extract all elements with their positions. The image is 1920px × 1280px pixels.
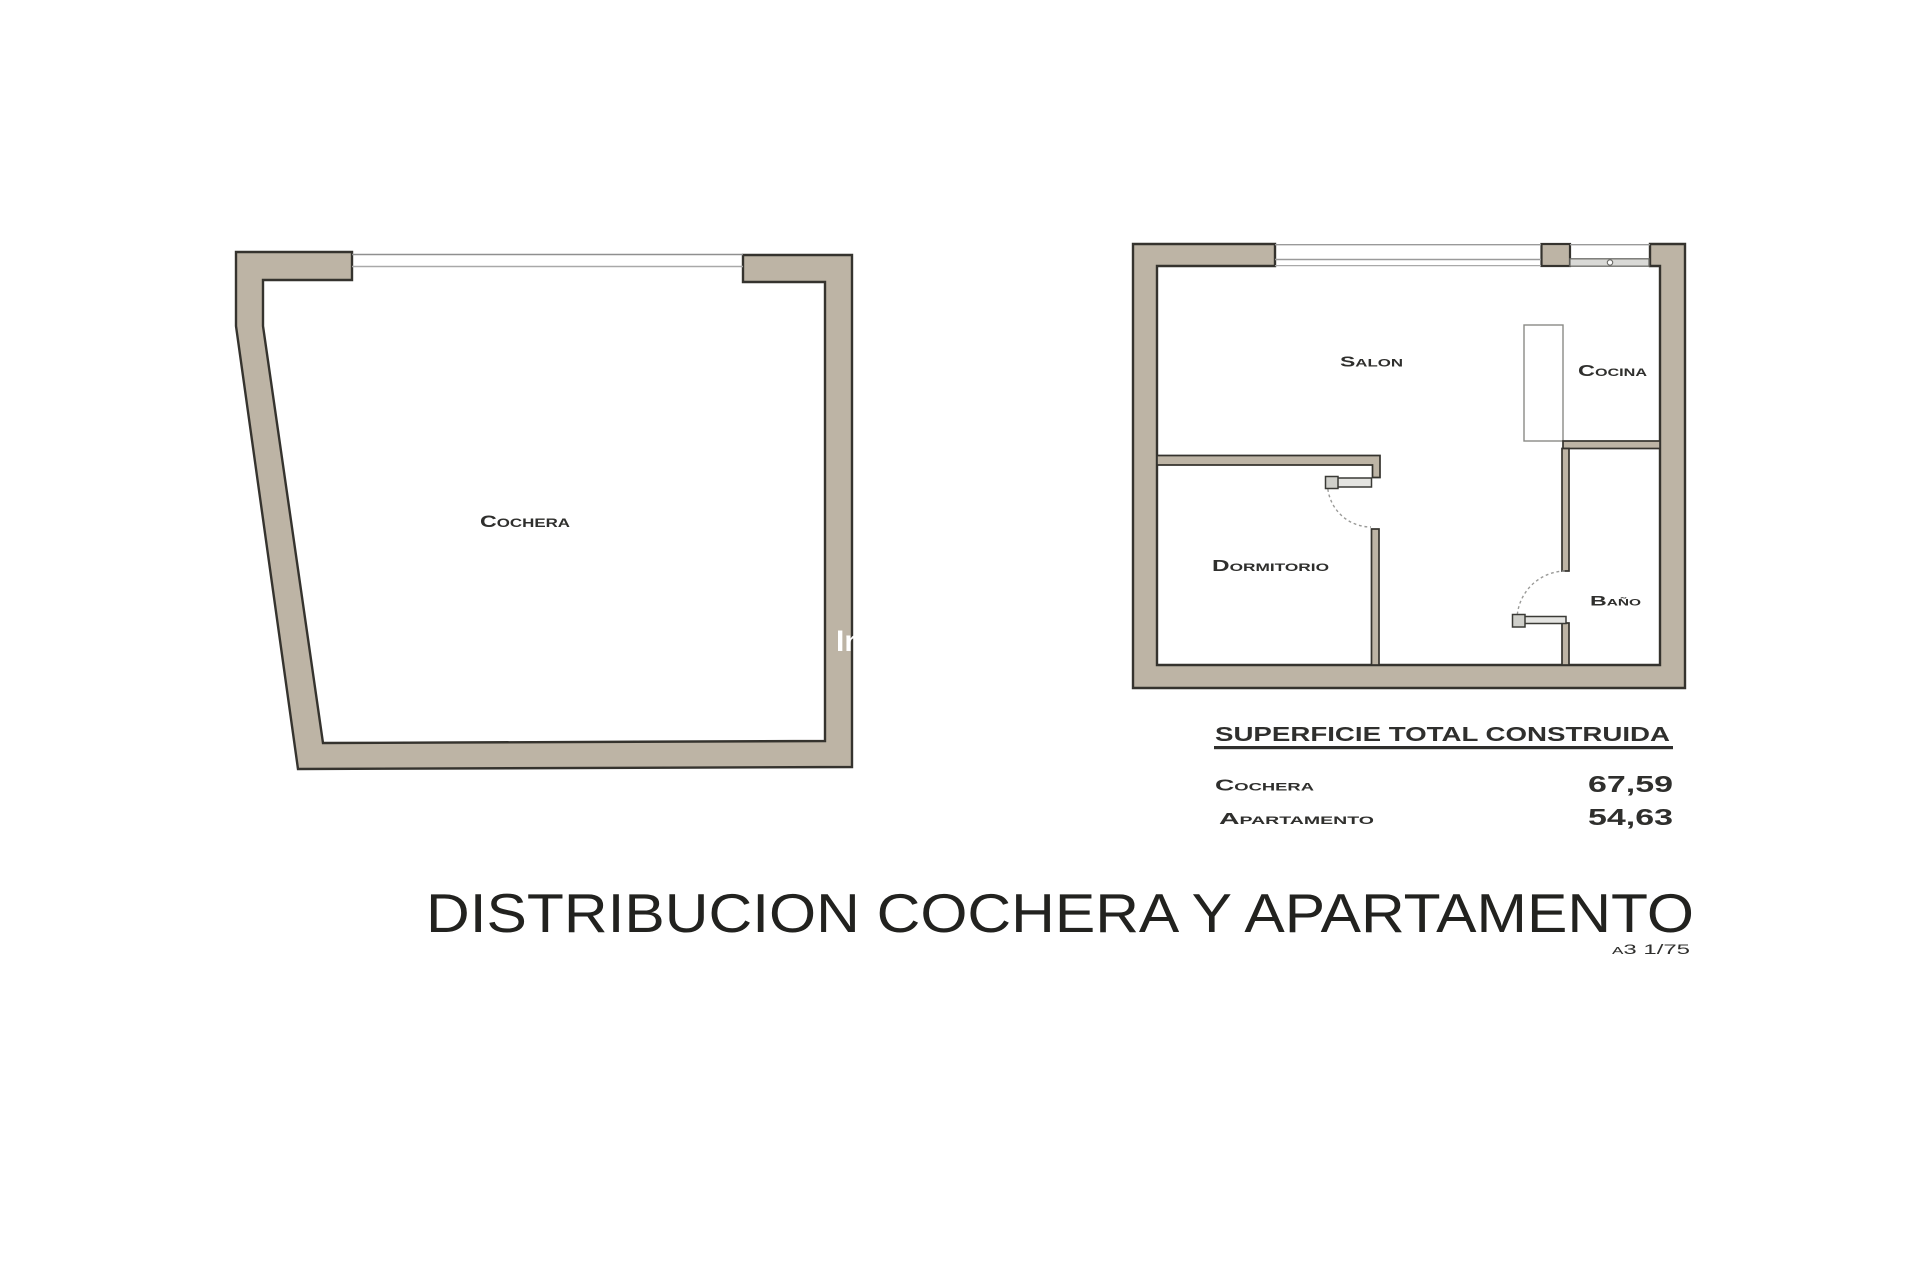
svg-text:Cocina: Cocina: [1578, 363, 1647, 380]
svg-text:In: In: [836, 625, 863, 658]
svg-text:a3 1/75: a3 1/75: [1612, 941, 1690, 957]
svg-text:SUPERFICIE TOTAL CONSTRUIDA: SUPERFICIE TOTAL CONSTRUIDA: [1215, 723, 1670, 746]
svg-text:DISTRIBUCION COCHERA Y APARTAM: DISTRIBUCION COCHERA Y APARTAMENTO: [426, 882, 1694, 944]
svg-text:54,63: 54,63: [1588, 804, 1673, 830]
svg-text:Baño: Baño: [1590, 594, 1641, 609]
svg-text:Cochera: Cochera: [480, 513, 570, 531]
svg-text:Apartamento: Apartamento: [1219, 811, 1375, 828]
svg-text:Cochera: Cochera: [1215, 778, 1314, 795]
svg-text:Salon: Salon: [1340, 354, 1403, 371]
svg-text:67,59: 67,59: [1588, 771, 1673, 797]
svg-text:Dormitorio: Dormitorio: [1212, 558, 1330, 575]
